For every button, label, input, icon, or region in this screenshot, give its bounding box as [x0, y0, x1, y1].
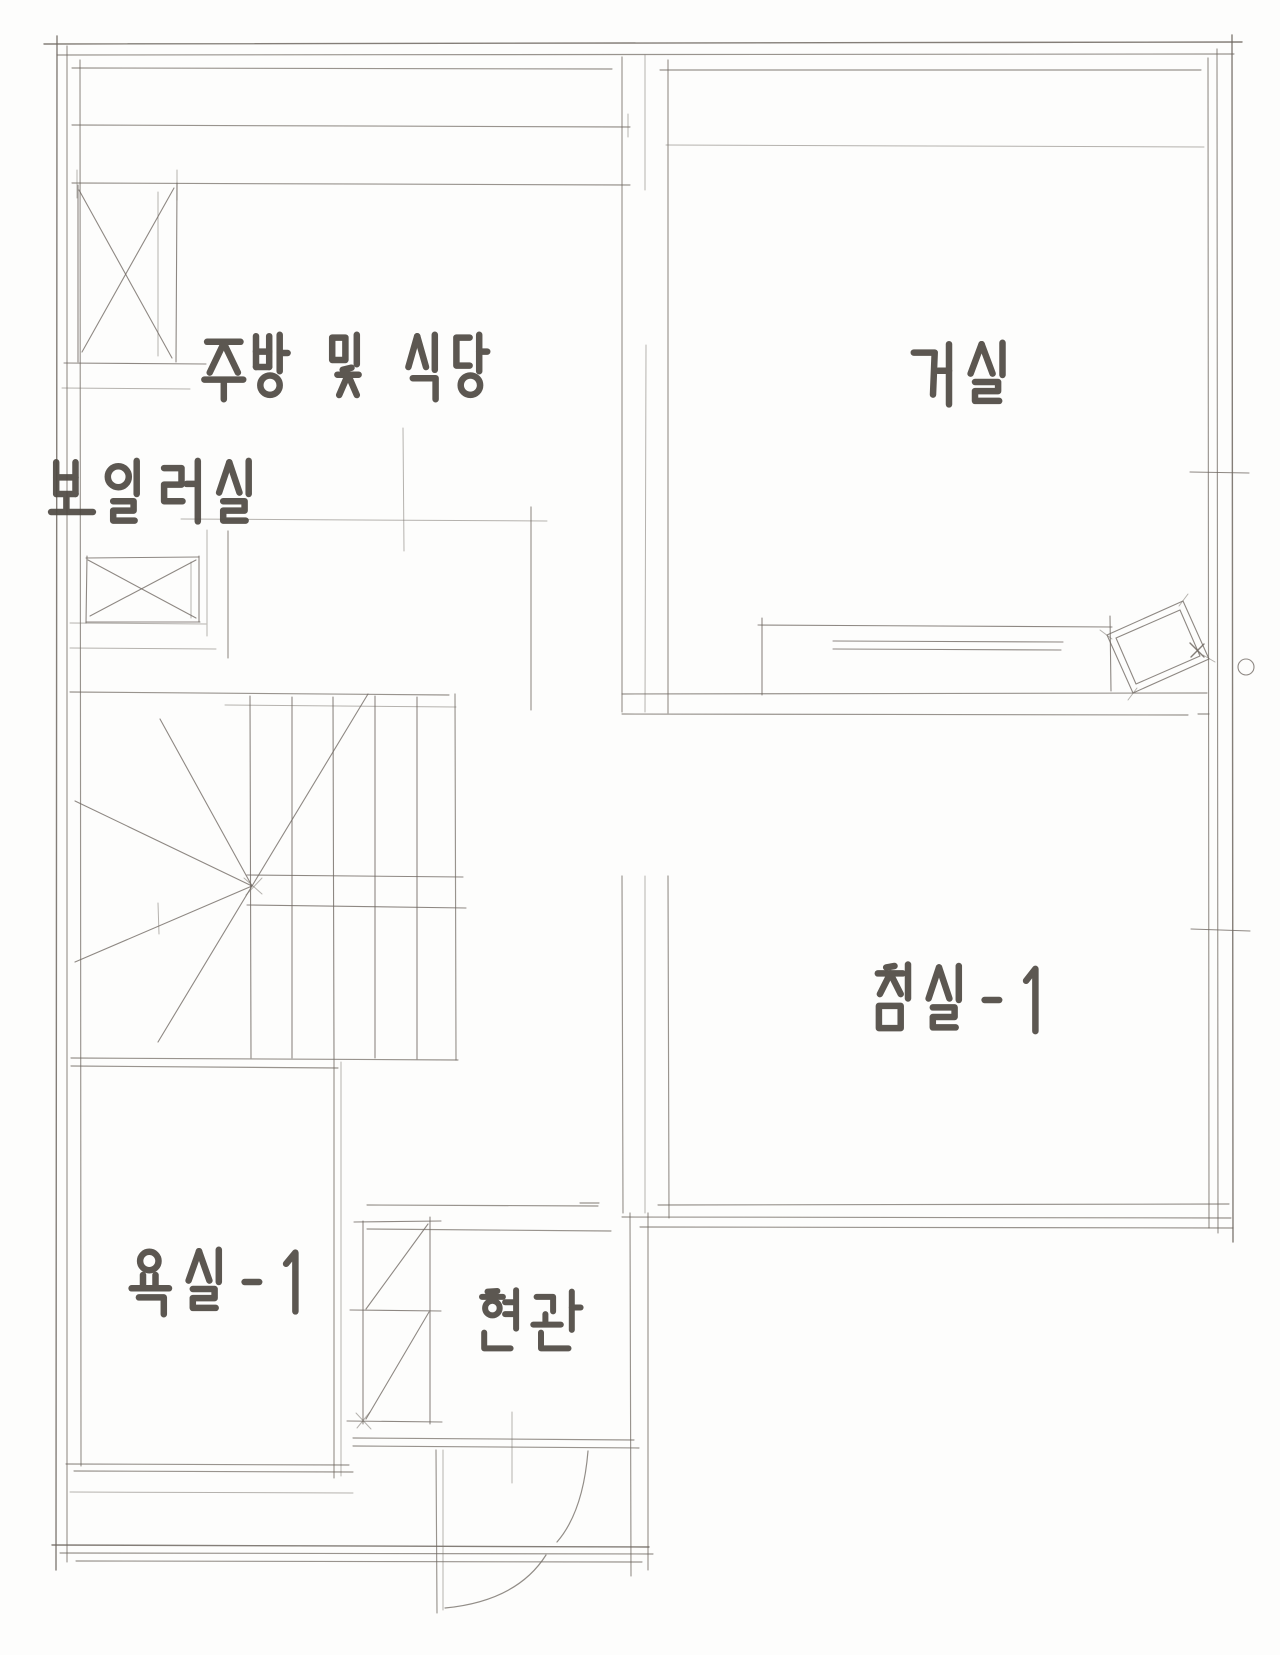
foyer-door-swing-arc — [557, 1451, 588, 1542]
room-label-entrance — [482, 1290, 581, 1348]
room-label-bedroom-1 — [878, 965, 1036, 1032]
room-labels — [51, 335, 1035, 1349]
floor-plan-canvas: 주방 및 식당 거실 보일러실 침실-1 욕실-1 현관 — [0, 0, 1280, 1655]
room-label-living-room — [914, 343, 1003, 405]
kitchen-counter-lines — [72, 114, 630, 200]
room-label-kitchen-dining — [204, 335, 487, 399]
entrance-door-arcs — [445, 1451, 588, 1608]
floor-plan-svg — [0, 0, 1280, 1655]
door-knob-circle — [1238, 659, 1254, 675]
bedroom-bottom-wall — [580, 1203, 1233, 1228]
living-room-fixtures — [666, 145, 1254, 931]
central-wall — [622, 55, 669, 1576]
outer-walls — [44, 35, 1242, 1570]
shoe-cabinet — [347, 1217, 442, 1429]
winder-staircase — [70, 692, 466, 1068]
sofa-bench — [758, 616, 1112, 695]
entrance-walls — [353, 1205, 639, 1613]
window-sill-ticks — [1190, 472, 1250, 931]
room-label-bathroom-1 — [132, 1250, 296, 1314]
boiler-x-box — [70, 530, 228, 658]
refrigerator-x-box — [62, 183, 206, 389]
tilted-side-table — [1100, 594, 1215, 700]
living-bedroom-divider-wall — [622, 693, 1209, 715]
entry-door-swing-arc — [445, 1555, 546, 1608]
kitchen-hall-partition-lines — [181, 428, 547, 710]
